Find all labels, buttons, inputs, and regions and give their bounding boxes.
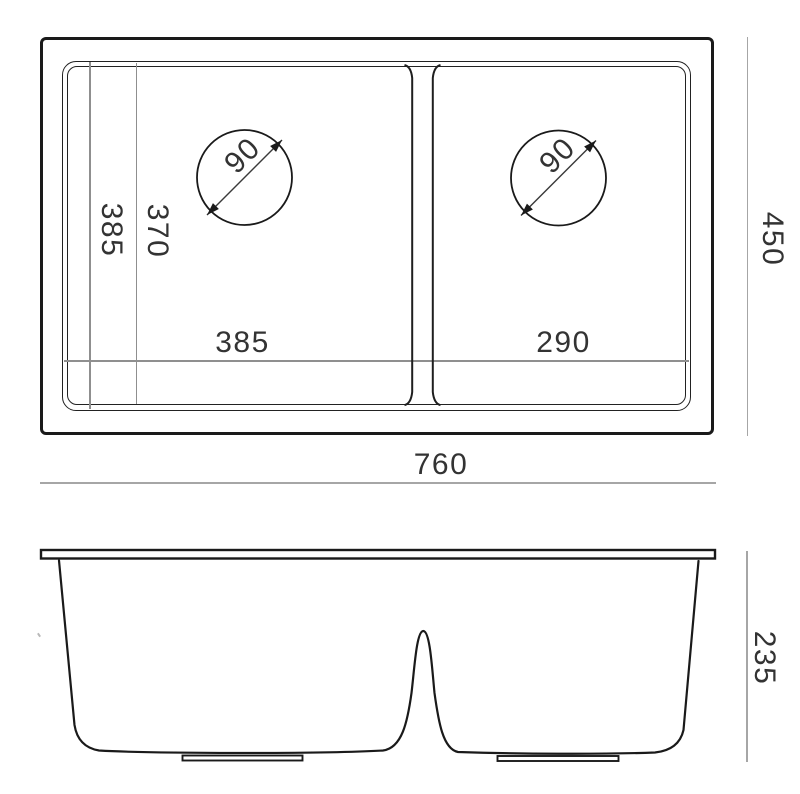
front-rim-bar bbox=[41, 550, 715, 559]
front-body-outline bbox=[59, 561, 699, 754]
sink-technical-drawing: 385 370 90 90 385 290 760 450 235 bbox=[0, 0, 800, 794]
front-left-bottom-pad bbox=[183, 756, 303, 761]
front-view-linework bbox=[0, 0, 800, 794]
dim-235-height: 235 bbox=[749, 631, 779, 686]
front-right-bottom-pad bbox=[498, 756, 619, 761]
